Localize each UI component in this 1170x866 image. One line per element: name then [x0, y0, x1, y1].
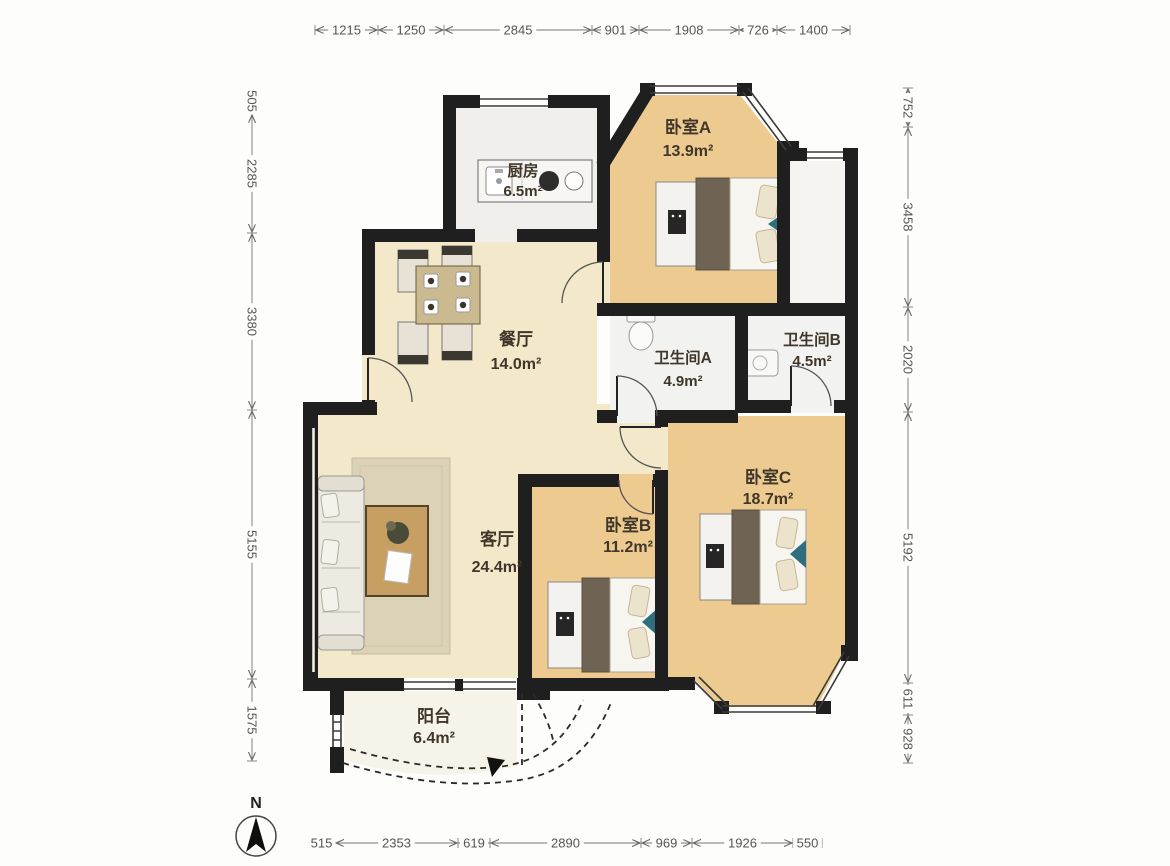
bedroom-a-bay-window	[650, 86, 740, 93]
dim-label: 550	[797, 836, 819, 851]
room-label-bedroom-b: 卧室B	[605, 515, 651, 535]
dim-label: 2285	[245, 159, 260, 188]
balcony-side-window	[333, 714, 341, 747]
floor-plan-image: 厨房 6.5m² 卧室A 13.9m² 餐厅 14.0m² 卫生间A 4.9m²…	[0, 0, 1170, 866]
dim-label: 2353	[382, 836, 411, 851]
room-area-bedroom-c: 18.7m²	[743, 491, 794, 508]
dimension-chain-left: 5052285338051551575	[244, 87, 260, 761]
dim-label: 752	[901, 97, 916, 119]
dimension-chain-right: 752345820205192611928	[900, 88, 916, 763]
bed-bedroom-b	[548, 578, 658, 672]
floor-plan-canvas: 厨房 6.5m² 卧室A 13.9m² 餐厅 14.0m² 卫生间A 4.9m²…	[0, 0, 1170, 866]
dim-label: 969	[656, 836, 678, 851]
room-label-bedroom-a: 卧室A	[665, 117, 711, 137]
duct-area-floor	[790, 161, 845, 305]
compass: N	[236, 795, 276, 856]
dim-label: 901	[605, 23, 627, 38]
room-area-bedroom-a: 13.9m²	[663, 143, 714, 160]
sink-icon	[496, 178, 502, 184]
dim-label: 1400	[799, 23, 828, 38]
room-area-dining: 14.0m²	[491, 356, 542, 373]
bed-bedroom-c	[700, 510, 806, 604]
toilet-icon	[627, 312, 655, 350]
dimension-chain-top: 12151250284590119087261400	[315, 22, 850, 38]
dim-label: 2020	[901, 345, 916, 374]
dim-label: 726	[747, 23, 769, 38]
dim-label: 5192	[901, 533, 916, 562]
dim-label: 505	[245, 90, 260, 112]
dim-label: 1926	[728, 836, 757, 851]
dim-label: 1250	[397, 23, 426, 38]
room-area-balcony: 6.4m²	[413, 730, 455, 747]
stove-burner2-icon	[565, 172, 583, 190]
dim-label: 2890	[551, 836, 580, 851]
room-area-bath-b: 4.5m²	[792, 353, 831, 370]
dim-label: 5155	[245, 530, 260, 559]
dim-label: 3380	[245, 307, 260, 336]
room-label-living: 客厅	[479, 529, 514, 549]
room-label-bath-b: 卫生间B	[783, 330, 841, 349]
dim-label: 1215	[332, 23, 361, 38]
room-area-kitchen: 6.5m²	[503, 183, 542, 200]
room-label-kitchen: 厨房	[507, 161, 538, 180]
duct-window	[807, 152, 843, 158]
dim-label: 928	[901, 728, 916, 750]
room-area-bedroom-b: 11.2m²	[603, 539, 653, 556]
dim-label: 2845	[504, 23, 533, 38]
room-label-balcony: 阳台	[417, 706, 451, 726]
room-area-bath-a: 4.9m²	[663, 373, 702, 390]
room-label-bath-a: 卫生间A	[654, 348, 712, 367]
room-label-dining: 餐厅	[499, 329, 533, 349]
kitchen-window	[480, 99, 548, 106]
dim-label: 515	[311, 836, 333, 851]
dimension-chain-bottom: 515235361928909691926550	[307, 835, 822, 851]
dim-label: 619	[463, 836, 485, 851]
bed-bedroom-a	[656, 178, 788, 270]
dim-label: 1575	[245, 706, 260, 735]
dim-label: 3458	[901, 203, 916, 232]
compass-north-label: N	[250, 795, 262, 812]
north-arrow-icon	[246, 817, 266, 852]
coffee-table	[366, 506, 428, 596]
dim-label: 611	[901, 689, 916, 710]
sofa	[318, 476, 364, 650]
room-area-living: 24.4m²	[472, 559, 523, 576]
room-label-bedroom-c: 卧室C	[745, 467, 791, 487]
dim-label: 1908	[675, 23, 704, 38]
